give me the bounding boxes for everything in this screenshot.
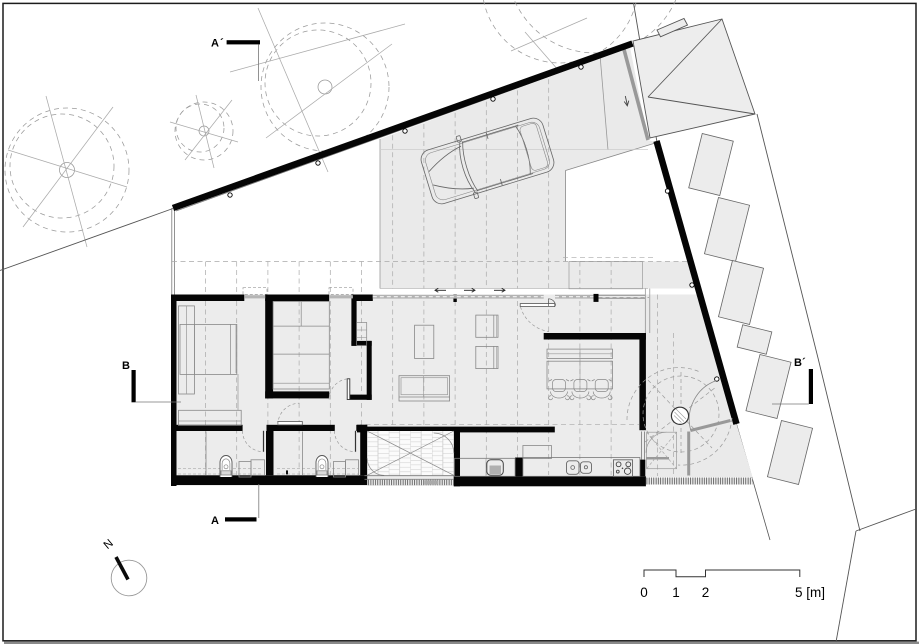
svg-text:B´: B´	[794, 357, 806, 369]
svg-text:A: A	[211, 515, 219, 527]
svg-text:B: B	[122, 360, 130, 372]
svg-text:0: 0	[640, 585, 648, 600]
svg-text:2: 2	[702, 585, 710, 600]
svg-text:5 [m]: 5 [m]	[795, 585, 825, 600]
svg-text:A´: A´	[211, 38, 225, 50]
svg-text:1: 1	[672, 585, 680, 600]
